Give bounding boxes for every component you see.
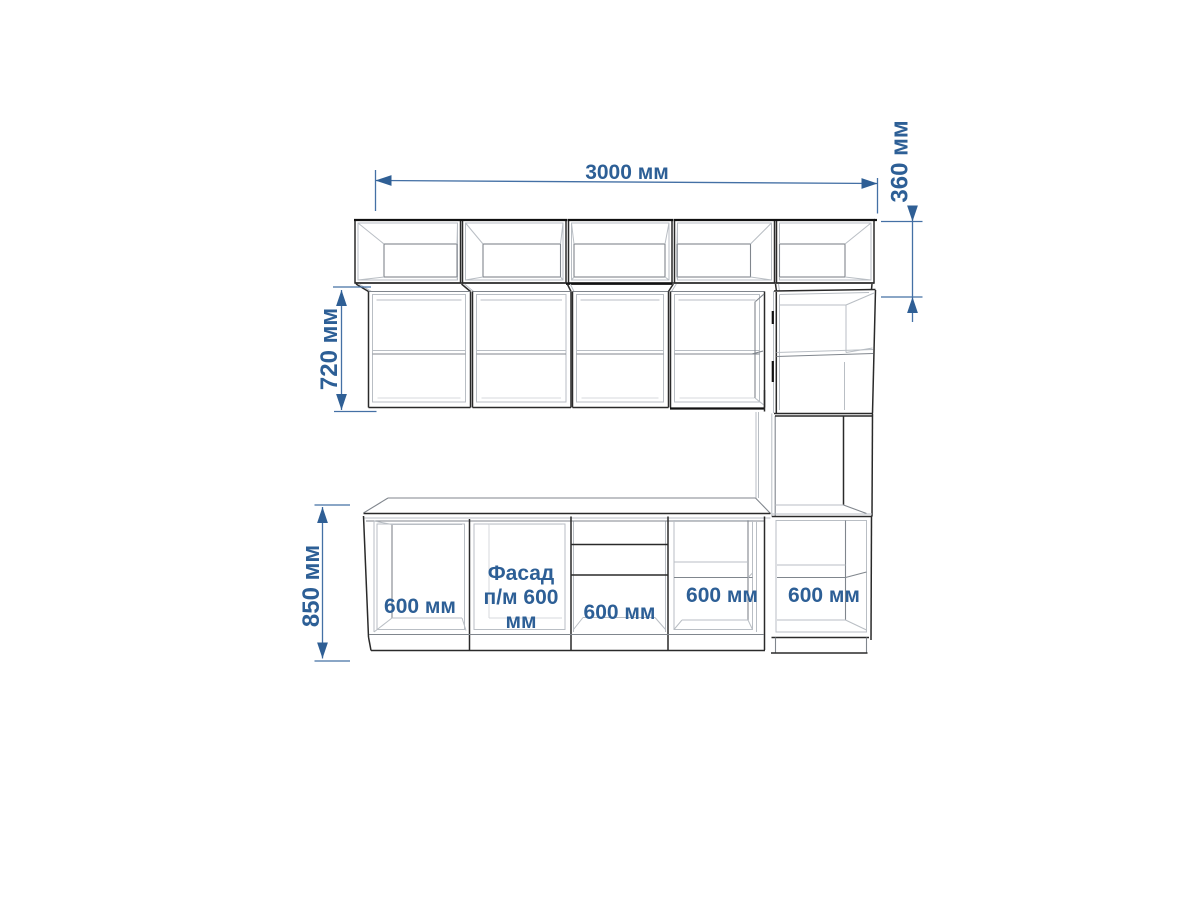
svg-text:600 мм: 600 мм xyxy=(788,584,860,607)
svg-text:600 мм: 600 мм xyxy=(584,601,656,624)
svg-text:720 мм: 720 мм xyxy=(316,308,343,390)
svg-text:Фасад: Фасад xyxy=(488,562,555,585)
svg-text:600 мм: 600 мм xyxy=(384,595,456,618)
svg-text:360 мм: 360 мм xyxy=(887,120,914,202)
svg-text:3000 мм: 3000 мм xyxy=(585,161,669,184)
svg-text:п/м 600: п/м 600 xyxy=(484,586,559,609)
svg-text:850 мм: 850 мм xyxy=(298,545,325,627)
svg-text:600 мм: 600 мм xyxy=(686,584,758,607)
svg-text:мм: мм xyxy=(505,610,536,633)
